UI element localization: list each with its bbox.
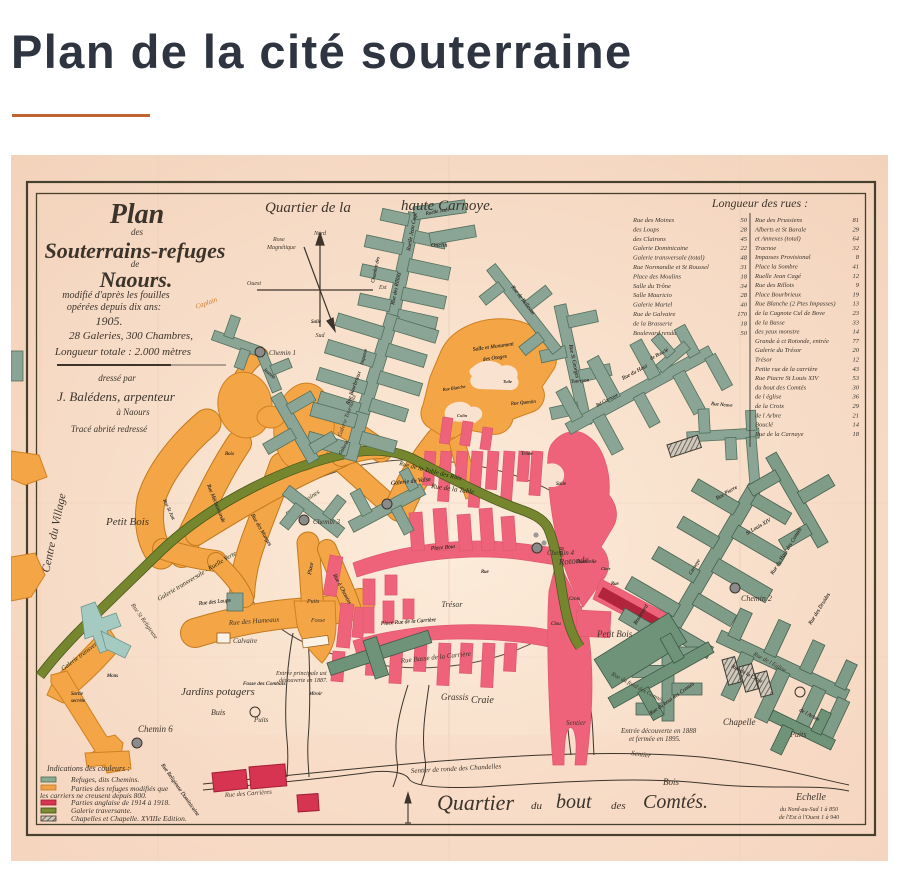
svg-text:50: 50	[741, 217, 748, 224]
svg-text:Crois: Crois	[569, 597, 580, 602]
svg-text:29: 29	[853, 403, 860, 410]
svg-text:Clair: Clair	[601, 566, 611, 571]
svg-text:Alberts et St Barale: Alberts et St Barale	[754, 226, 806, 233]
svg-text:Rue Piacre St Louis XIV: Rue Piacre St Louis XIV	[754, 375, 819, 382]
svg-text:18: 18	[853, 431, 860, 438]
svg-text:Ouest: Ouest	[247, 281, 261, 287]
svg-text:Bouclé: Bouclé	[755, 422, 774, 429]
svg-text:Refuges, dits Chemins.: Refuges, dits Chemins.	[70, 775, 139, 784]
svg-text:de l'Est à l'Ouest 1 à 940: de l'Est à l'Ouest 1 à 940	[779, 814, 839, 821]
svg-text:découverte en 1887.: découverte en 1887.	[279, 678, 327, 684]
svg-text:opérées depuis dix ans:: opérées depuis dix ans:	[67, 302, 161, 313]
svg-text:de la Basse: de la Basse	[755, 319, 785, 326]
svg-text:1905.: 1905.	[96, 314, 123, 328]
svg-text:Clou: Clou	[551, 622, 561, 627]
svg-text:31: 31	[740, 264, 748, 271]
svg-text:Quartier: Quartier	[437, 790, 514, 815]
svg-text:Mons: Mons	[106, 674, 118, 679]
svg-text:36: 36	[852, 394, 860, 401]
svg-text:du: du	[531, 800, 543, 812]
svg-text:Rose: Rose	[272, 237, 285, 243]
svg-text:Rue des Prussiens: Rue des Prussiens	[754, 217, 803, 224]
svg-text:Boulevard rendu: Boulevard rendu	[633, 330, 677, 337]
svg-text:14: 14	[853, 329, 860, 336]
svg-text:12: 12	[853, 357, 860, 364]
svg-text:et Annexes (total): et Annexes (total)	[755, 236, 801, 243]
svg-text:des: des	[611, 800, 626, 812]
svg-text:18: 18	[741, 273, 748, 280]
svg-text:Rue des Moines: Rue des Moines	[632, 217, 675, 224]
svg-text:Grassis: Grassis	[441, 692, 469, 702]
svg-text:Entrée principale ust: Entrée principale ust	[275, 671, 327, 677]
svg-text:Est: Est	[378, 285, 387, 291]
svg-text:Rue: Rue	[610, 582, 620, 587]
svg-text:Rue Blanche (2 Ptes Impasses): Rue Blanche (2 Ptes Impasses)	[754, 301, 836, 308]
svg-text:Place des Moulins: Place des Moulins	[632, 273, 681, 280]
svg-text:32: 32	[852, 245, 860, 252]
svg-text:14: 14	[853, 422, 860, 429]
svg-text:48: 48	[741, 255, 748, 262]
svg-text:Tracé abrité redressé: Tracé abrité redressé	[71, 424, 148, 434]
svg-text:40: 40	[741, 302, 748, 309]
svg-text:Rue de Galvaire: Rue de Galvaire	[632, 311, 675, 318]
svg-text:de l église: de l église	[755, 394, 781, 401]
svg-text:des: des	[131, 227, 143, 237]
svg-text:Chapelles et Chapelle. XVIIIe: Chapelles et Chapelle. XVIIIe Edition.	[71, 814, 187, 823]
svg-text:53: 53	[853, 375, 860, 382]
svg-text:Chemin 4: Chemin 4	[547, 549, 575, 557]
svg-text:Plan: Plan	[109, 199, 164, 230]
svg-text:28 Galeries, 300 Chambres,: 28 Galeries, 300 Chambres,	[69, 330, 193, 342]
svg-text:41: 41	[853, 264, 860, 271]
svg-text:43: 43	[853, 366, 860, 373]
svg-text:Ruelle Jean Cagé: Ruelle Jean Cagé	[754, 273, 802, 280]
svg-text:Naours.: Naours.	[99, 267, 173, 292]
svg-text:50: 50	[741, 330, 748, 337]
svg-text:12: 12	[853, 273, 860, 280]
svg-text:170: 170	[737, 311, 748, 318]
svg-text:Tracnoe: Tracnoe	[755, 245, 776, 252]
svg-text:Quartier de la: Quartier de la	[265, 200, 351, 216]
svg-text:Nord: Nord	[313, 231, 327, 237]
svg-text:de l Arbre: de l Arbre	[755, 412, 781, 419]
svg-text:Puits: Puits	[306, 599, 320, 605]
svg-text:des yeux monstre: des yeux monstre	[755, 329, 800, 336]
svg-text:Galerie transversale (total): Galerie transversale (total)	[633, 255, 705, 262]
svg-text:Sentier: Sentier	[566, 719, 586, 727]
svg-text:Rue: Rue	[480, 570, 490, 575]
svg-text:34: 34	[740, 283, 748, 290]
svg-text:Chemin 6: Chemin 6	[138, 724, 173, 734]
svg-text:de la Cagnote Cul de Bove: de la Cagnote Cul de Bove	[755, 310, 825, 317]
svg-text:Fosse: Fosse	[310, 618, 325, 624]
svg-text:Impasses Provisional: Impasses Provisional	[754, 254, 811, 261]
svg-text:13: 13	[853, 301, 860, 308]
svg-text:Colin: Colin	[457, 413, 468, 418]
svg-text:Puits: Puits	[789, 730, 806, 739]
svg-text:Place Bourbrieux: Place Bourbrieux	[754, 291, 801, 298]
svg-text:modifié d'après les fouilles: modifié d'après les fouilles	[62, 290, 170, 301]
svg-text:Place la Sombre: Place la Sombre	[754, 264, 798, 271]
svg-text:20: 20	[853, 347, 860, 354]
svg-text:et fermée en 1895.: et fermée en 1895.	[629, 735, 681, 743]
svg-text:Salle du Trône: Salle du Trône	[633, 283, 671, 290]
svg-text:Chapelle: Chapelle	[723, 717, 756, 727]
svg-text:Trésor: Trésor	[442, 600, 464, 609]
svg-text:Chemin 3: Chemin 3	[313, 518, 341, 526]
svg-text:Craie: Craie	[471, 695, 494, 706]
svg-text:Rue des Rillots: Rue des Rillots	[754, 282, 794, 289]
svg-text:Petite rue de la carrière: Petite rue de la carrière	[754, 366, 818, 373]
svg-text:des Clairons: des Clairons	[633, 236, 666, 243]
svg-text:dressé par: dressé par	[98, 373, 136, 383]
svg-text:Calvaire: Calvaire	[233, 637, 257, 645]
svg-text:Rue Normandie et St Roussel: Rue Normandie et St Roussel	[632, 264, 709, 271]
svg-text:Longueur des rues :: Longueur des rues :	[711, 196, 808, 210]
svg-text:21: 21	[853, 412, 860, 419]
svg-text:Chemin 1: Chemin 1	[269, 349, 296, 357]
svg-text:à Naours: à Naours	[116, 407, 150, 417]
svg-text:Salle: Salle	[311, 320, 322, 325]
svg-text:Comtés.: Comtés.	[643, 791, 708, 813]
svg-text:30: 30	[852, 384, 860, 391]
svg-text:33: 33	[852, 319, 860, 326]
svg-text:Buis: Buis	[211, 708, 225, 717]
svg-text:Galerie Martel: Galerie Martel	[633, 302, 672, 309]
svg-text:Trône: Trône	[521, 452, 533, 457]
svg-text:Galerie du Trésor: Galerie du Trésor	[755, 347, 802, 354]
svg-text:secrète: secrète	[71, 699, 86, 704]
svg-text:Trésor: Trésor	[755, 357, 772, 364]
svg-text:Echelle: Echelle	[795, 792, 827, 803]
svg-text:77: 77	[853, 338, 860, 345]
svg-text:Rue de la Carnaye: Rue de la Carnaye	[754, 431, 804, 438]
svg-text:Petit Bois: Petit Bois	[105, 516, 149, 528]
svg-text:28: 28	[741, 292, 748, 299]
svg-text:Chemin 2: Chemin 2	[741, 594, 772, 603]
svg-text:Sortie: Sortie	[71, 692, 84, 697]
svg-text:Magnétique: Magnétique	[266, 245, 296, 251]
svg-text:Entrée découverte en 1888: Entrée découverte en 1888	[620, 727, 697, 735]
svg-text:bout: bout	[556, 791, 592, 813]
svg-text:22: 22	[741, 245, 748, 252]
svg-text:Salle: Salle	[556, 482, 567, 487]
svg-text:de la Brasserie: de la Brasserie	[633, 320, 672, 327]
svg-text:23: 23	[853, 310, 860, 317]
svg-text:Indications des coule: Indications des couleurs :	[46, 764, 130, 773]
svg-text:Petit Bois: Petit Bois	[596, 629, 633, 639]
svg-text:28: 28	[741, 226, 748, 233]
svg-text:du bout des Comtés: du bout des Comtés	[755, 384, 807, 391]
svg-text:J. Balédens, arpenteur: J. Balédens, arpenteur	[57, 389, 176, 404]
svg-text:Salle Mauricio: Salle Mauricio	[633, 292, 673, 299]
svg-text:Tuile: Tuile	[503, 379, 512, 384]
svg-text:19: 19	[853, 291, 860, 298]
svg-text:Longueur totale : 2.000 mètres: Longueur totale : 2.000 mètres	[54, 346, 191, 358]
svg-text:18: 18	[741, 320, 748, 327]
svg-text:Jardins potagers: Jardins potagers	[181, 686, 255, 698]
svg-text:64: 64	[853, 236, 860, 243]
svg-text:45: 45	[741, 236, 748, 243]
svg-text:Sud: Sud	[316, 333, 326, 339]
svg-text:Galerie Dominicaine: Galerie Dominicaine	[633, 245, 688, 252]
svg-text:du Nord-au-Sud 1 à 850: du Nord-au-Sud 1 à 850	[780, 807, 838, 813]
svg-text:des Loups: des Loups	[633, 226, 660, 233]
svg-text:Miroir: Miroir	[308, 692, 322, 697]
svg-text:Puits: Puits	[253, 716, 269, 724]
svg-text:81: 81	[853, 217, 860, 224]
svg-text:Bois: Bois	[225, 452, 234, 457]
svg-text:29: 29	[853, 226, 860, 233]
svg-text:Bois: Bois	[663, 777, 679, 787]
svg-text:Onclin: Onclin	[431, 243, 447, 249]
svg-text:de la Croix: de la Croix	[755, 403, 784, 410]
svg-text:Grande à ct Rotonde, entrée: Grande à ct Rotonde, entrée	[755, 338, 829, 345]
